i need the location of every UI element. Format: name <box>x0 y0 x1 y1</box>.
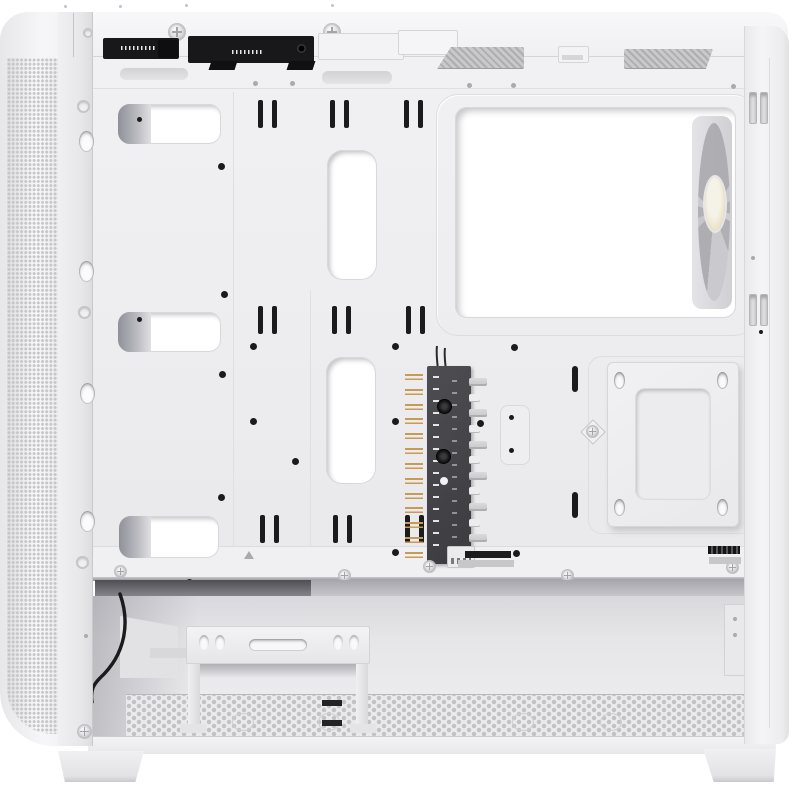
pcb-standoff <box>437 450 450 463</box>
front-edge-screw-hole <box>76 556 89 569</box>
pin-row <box>405 433 423 439</box>
front-edge-screw-hole <box>83 28 93 38</box>
front-edge-screw-hole <box>77 100 90 113</box>
standoff-hole <box>477 420 484 427</box>
io-connector-pins <box>232 50 262 54</box>
front-bottom-screw <box>78 725 91 738</box>
rear-grille-icon <box>708 546 740 554</box>
rivet <box>731 84 736 89</box>
front-io-board-icon <box>188 36 314 63</box>
tray-vertical-seam-1 <box>233 92 234 576</box>
pcb-led <box>440 477 448 485</box>
cable-cutout-left-bottom <box>119 516 219 558</box>
floor-stamp-ring <box>600 713 622 731</box>
case-foot-left <box>58 751 144 782</box>
front-edge-oval-hole <box>80 383 95 404</box>
standoff-hole <box>392 549 399 556</box>
pcb-pin-headers <box>405 374 427 558</box>
floor-clip <box>322 700 342 706</box>
pin-row <box>405 389 423 395</box>
conn <box>469 487 480 495</box>
rear-grille-base <box>709 557 741 564</box>
pc-case-photo <box>0 0 800 800</box>
top-edge-hole <box>64 5 67 8</box>
standoff-hole <box>250 343 257 350</box>
screw-hole-in-cutout <box>137 317 142 322</box>
cable-cutout-center-bottom <box>326 357 376 484</box>
hdd-mount-slot <box>333 635 343 650</box>
pin-row <box>405 463 423 469</box>
hdd-mount-slot <box>349 635 359 650</box>
bracket-hole <box>733 617 737 621</box>
dust-filter-floor-mesh <box>126 694 760 741</box>
case-foot-right <box>700 749 776 782</box>
tray-vertical-seam-2 <box>310 290 311 576</box>
conn <box>469 534 487 542</box>
hdd-mount-slot <box>215 635 225 650</box>
pcb-standoff <box>438 400 451 413</box>
pin-row <box>405 493 423 499</box>
front-panel-mesh <box>7 58 58 734</box>
front-panel-cable <box>86 592 146 708</box>
pin-row <box>405 522 423 528</box>
cable-tie-slit <box>572 366 578 392</box>
ssd-plate-recess <box>635 388 711 500</box>
fan-hub <box>705 177 725 231</box>
clip-slot <box>562 55 583 60</box>
standoff-hole <box>219 371 226 378</box>
floor-stamp-ring <box>512 713 534 731</box>
standoff-hole <box>392 343 399 350</box>
bracket-hole <box>733 633 737 637</box>
top-edge-hole <box>331 4 334 7</box>
front-edge-oval-hole <box>80 511 95 532</box>
cable-tie-slits <box>404 100 423 128</box>
standoff-hole <box>392 418 399 425</box>
conn <box>469 441 487 449</box>
pump-mount-plate <box>500 405 530 465</box>
conn <box>469 394 480 402</box>
top-edge-hole <box>119 5 122 8</box>
front-edge-oval-hole <box>79 131 94 152</box>
top-vent-mesh <box>437 47 524 69</box>
cable-cutout-left-mid <box>118 312 221 352</box>
tray-top-seam <box>92 88 744 89</box>
rivet <box>467 83 472 88</box>
argb-fan-hub-pcb <box>427 366 471 564</box>
floor-stamp-ring <box>232 713 254 731</box>
rear-edge-seam <box>769 58 770 728</box>
alignment-triangle-mark <box>244 551 254 559</box>
cable-tie-slits <box>258 100 277 128</box>
standoff-hole <box>292 458 299 465</box>
cable-tie-slits <box>333 515 352 543</box>
ssd-slot <box>614 372 625 389</box>
pin-row <box>405 478 423 484</box>
standoff-hole <box>513 550 520 557</box>
pin-row <box>405 507 423 513</box>
rivet <box>759 330 763 334</box>
pcb-bracket-arm <box>465 551 511 558</box>
hdd-mount-slot <box>199 635 209 650</box>
tray-screw <box>115 566 126 577</box>
top-inset-shadow <box>322 71 392 84</box>
rear-cable-tie-slots <box>749 294 767 324</box>
rear-cable-tie-slots <box>749 92 767 122</box>
pin-row <box>405 404 423 410</box>
hdd-cage-flange <box>350 724 376 733</box>
ssd-slot <box>614 499 625 516</box>
ssd-mount-plate <box>607 362 739 527</box>
pcb-bracket-base <box>458 560 514 567</box>
io-connector-pins <box>121 46 155 50</box>
standoff-hole <box>511 344 518 351</box>
cable-tie-slits <box>406 306 425 334</box>
front-edge-oval-hole <box>79 261 94 282</box>
pin-row <box>405 537 423 543</box>
top-panel-latch <box>318 33 404 60</box>
pcb-silkscreen-marks <box>452 380 457 548</box>
hdd-cage-flange <box>180 724 206 733</box>
rivet <box>511 83 516 88</box>
ssd-slot <box>717 499 728 516</box>
conn <box>469 456 480 464</box>
standoff-hole <box>218 163 225 170</box>
rivet <box>290 81 295 86</box>
pin-row <box>405 552 423 558</box>
rivet <box>751 256 755 260</box>
top-inset-shadow <box>120 68 188 80</box>
conn <box>469 503 487 511</box>
conn <box>469 472 487 480</box>
rear-panel-edge <box>744 26 789 744</box>
io-mount-tab <box>209 61 238 70</box>
mount-hole <box>509 415 514 420</box>
hdd-cage-shadow <box>200 662 356 678</box>
conn <box>469 378 487 386</box>
top-edge-hole <box>185 4 188 7</box>
bottom-rail <box>88 736 776 754</box>
floor-clip <box>322 720 342 726</box>
mount-hole <box>509 448 514 453</box>
pin-row <box>405 418 423 424</box>
standoff-hole <box>218 494 225 501</box>
standoff-hole <box>221 291 228 298</box>
cable-tie-slits <box>258 306 277 334</box>
pcb-fan-connectors <box>469 378 489 558</box>
conn <box>469 409 487 417</box>
pin-row <box>405 448 423 454</box>
cable-cutout-center-top <box>327 150 377 280</box>
io-button-icon <box>297 44 306 53</box>
standoff-hole <box>250 418 257 425</box>
hdd-cage-bracket <box>186 626 370 664</box>
under-tray-shadow <box>311 580 744 596</box>
rivet <box>84 634 88 638</box>
radiator-bracket-clip <box>558 46 589 63</box>
thumbscrew <box>587 426 598 437</box>
cable-tie-slits <box>330 100 349 128</box>
cable-tie-slit <box>572 492 578 518</box>
front-top-seam <box>73 13 74 57</box>
cable-cutout-left-top <box>118 104 221 144</box>
cable-tie-slits <box>332 306 351 334</box>
screw-hole-in-cutout <box>137 117 142 122</box>
io-bracket <box>158 40 178 58</box>
conn <box>469 519 480 527</box>
cable-tie-slits <box>260 515 279 543</box>
top-vent-mesh <box>624 49 713 69</box>
io-mount-tab <box>287 61 316 70</box>
front-edge-screw-hole <box>78 306 91 319</box>
pin-row <box>405 374 423 380</box>
cpu-cutout-opening <box>455 107 736 318</box>
tray-screw <box>424 561 435 572</box>
ssd-slot <box>717 372 728 389</box>
hdd-center-slot <box>249 639 307 651</box>
rivet <box>253 81 258 86</box>
